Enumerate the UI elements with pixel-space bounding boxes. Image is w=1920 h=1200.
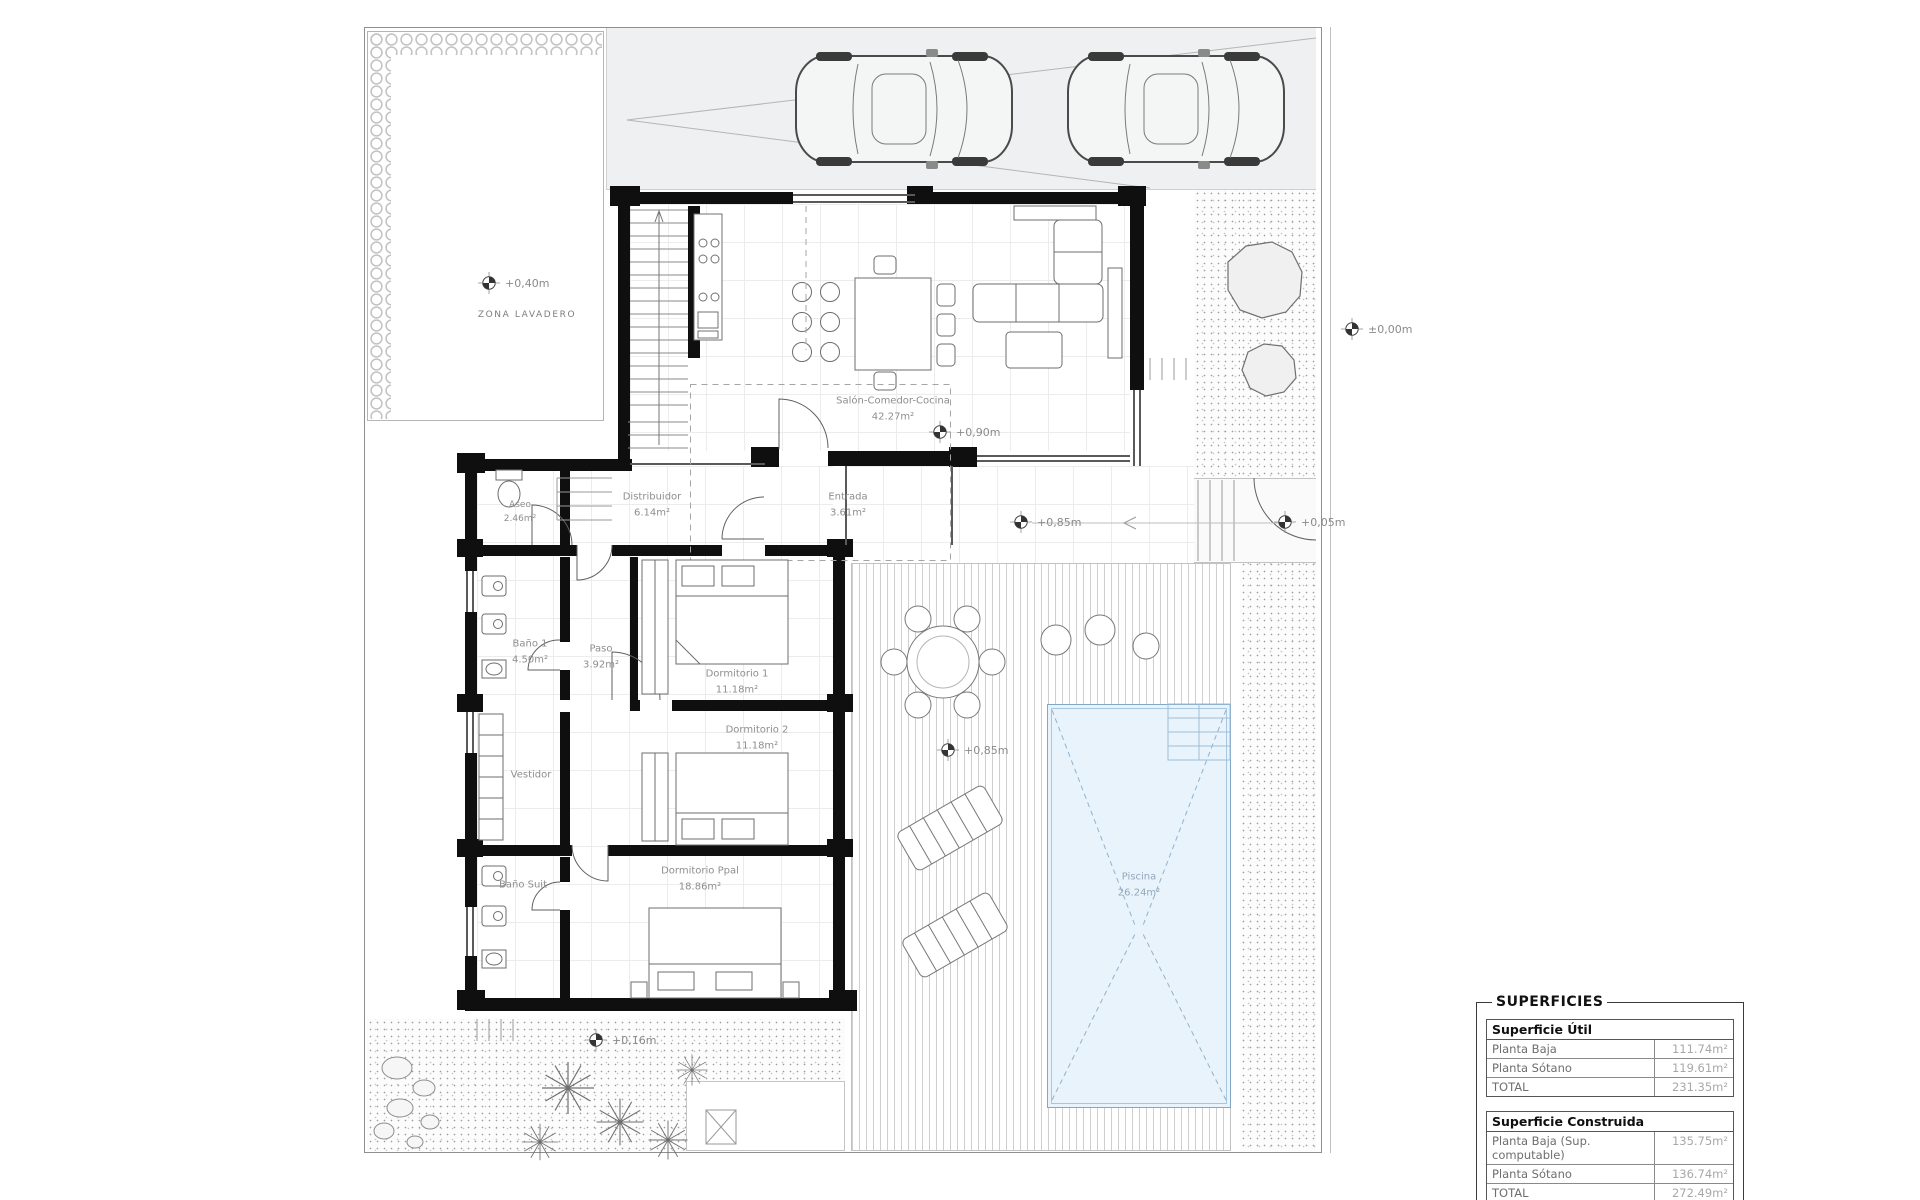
row-label: Planta Baja (Sup. computable) (1487, 1132, 1655, 1164)
table-row: Planta Baja111.74m² (1487, 1040, 1733, 1059)
room-label-dormitorio-ppal: Dormitorio Ppal18.86m² (661, 864, 739, 895)
table-row: Planta Baja (Sup. computable)135.75m² (1487, 1132, 1733, 1165)
row-value: 119.61m² (1655, 1059, 1733, 1077)
level-marker-path-b: +0,05m (1274, 511, 1345, 533)
table-row: Planta Sótano119.61m² (1487, 1059, 1733, 1078)
room-label-distribuidor: Distribuidor6.14m² (623, 490, 682, 521)
title-tick (1477, 1002, 1487, 1003)
terrace-furniture (881, 606, 1159, 979)
kitchen-counter (694, 214, 722, 340)
row-label: TOTAL (1487, 1078, 1655, 1096)
plant-symbols (522, 1054, 708, 1160)
level-marker-back: +0,16m (585, 1029, 656, 1051)
room-label-dormitorio1: Dormitorio 111.18m² (706, 667, 769, 698)
staircase (628, 210, 688, 448)
table-row: TOTAL231.35m² (1487, 1078, 1733, 1096)
room-label-vestidor: Vestidor (511, 767, 552, 783)
room-label-entrada: Entrada3.61m² (828, 490, 867, 521)
room-label-dormitorio2: Dormitorio 211.18m² (726, 723, 789, 754)
level-marker-salon: +0,90m (929, 421, 1000, 443)
room-label-bano-suit: Baño Suit (499, 877, 547, 893)
level-marker-street: ±0,00m (1341, 318, 1412, 340)
row-value: 231.35m² (1655, 1078, 1733, 1096)
level-marker-icon (1010, 511, 1032, 533)
row-label: Planta Sótano (1487, 1059, 1655, 1077)
room-label-piscina: Piscina26.24m² (1118, 870, 1160, 901)
level-marker-icon (1341, 318, 1363, 340)
row-value: 136.74m² (1655, 1165, 1733, 1183)
sofa-set (973, 206, 1122, 368)
drain-box (706, 1110, 736, 1144)
level-marker-icon (585, 1029, 607, 1051)
table-row: TOTAL272.49m² (1487, 1184, 1733, 1200)
level-marker-terrace: +0,85m (937, 739, 1008, 761)
level-marker-icon (478, 272, 500, 294)
surfaces-title: SUPERFICIES (1492, 994, 1607, 1010)
row-label: TOTAL (1487, 1184, 1655, 1200)
room-label-paso: Paso3.92m² (583, 642, 619, 673)
room-label-bano1: Baño 14.50m² (512, 637, 548, 668)
superficie-construida-table: Superficie Construida Planta Baja (Sup. … (1486, 1111, 1734, 1200)
dashed-overhang-lines (691, 206, 951, 561)
room-label-salon: Salón-Comedor-Cocina42.27m² (836, 394, 950, 425)
level-marker-icon (929, 421, 951, 443)
level-marker-path-a: +0,85m (1010, 511, 1081, 533)
level-marker-garden: +0,40m (478, 272, 549, 294)
room-label-aseo: Aseo2.46m² (504, 499, 536, 527)
table-header: Superficie Construida (1487, 1112, 1733, 1132)
row-value: 135.75m² (1655, 1132, 1733, 1164)
superficie-util-table: Superficie Útil Planta Baja111.74m² Plan… (1486, 1019, 1734, 1097)
dining-set (793, 256, 956, 390)
surfaces-panel: SUPERFICIES Superficie Útil Planta Baja1… (1476, 994, 1744, 1200)
row-label: Planta Baja (1487, 1040, 1655, 1058)
surfaces-box: SUPERFICIES Superficie Útil Planta Baja1… (1476, 1002, 1744, 1200)
title-rule (1612, 1002, 1739, 1003)
boulders (1228, 242, 1302, 396)
row-value: 272.49m² (1655, 1184, 1733, 1200)
car-icon (796, 49, 1012, 169)
table-row: Planta Sótano136.74m² (1487, 1165, 1733, 1184)
level-marker-icon (1274, 511, 1296, 533)
level-marker-icon (937, 739, 959, 761)
surfaces-title-row: SUPERFICIES (1477, 994, 1739, 1010)
floor-plan: ZONA LAVADERO Salón-Comedor-Cocina42.27m… (0, 0, 1920, 1200)
room-label-zona-lavadero: ZONA LAVADERO (478, 309, 576, 323)
row-label: Planta Sótano (1487, 1165, 1655, 1183)
stone-cluster (374, 1057, 439, 1148)
row-value: 111.74m² (1655, 1040, 1733, 1058)
car-icon (1068, 49, 1284, 169)
pool-detail (1052, 704, 1230, 1100)
table-header: Superficie Útil (1487, 1020, 1733, 1040)
